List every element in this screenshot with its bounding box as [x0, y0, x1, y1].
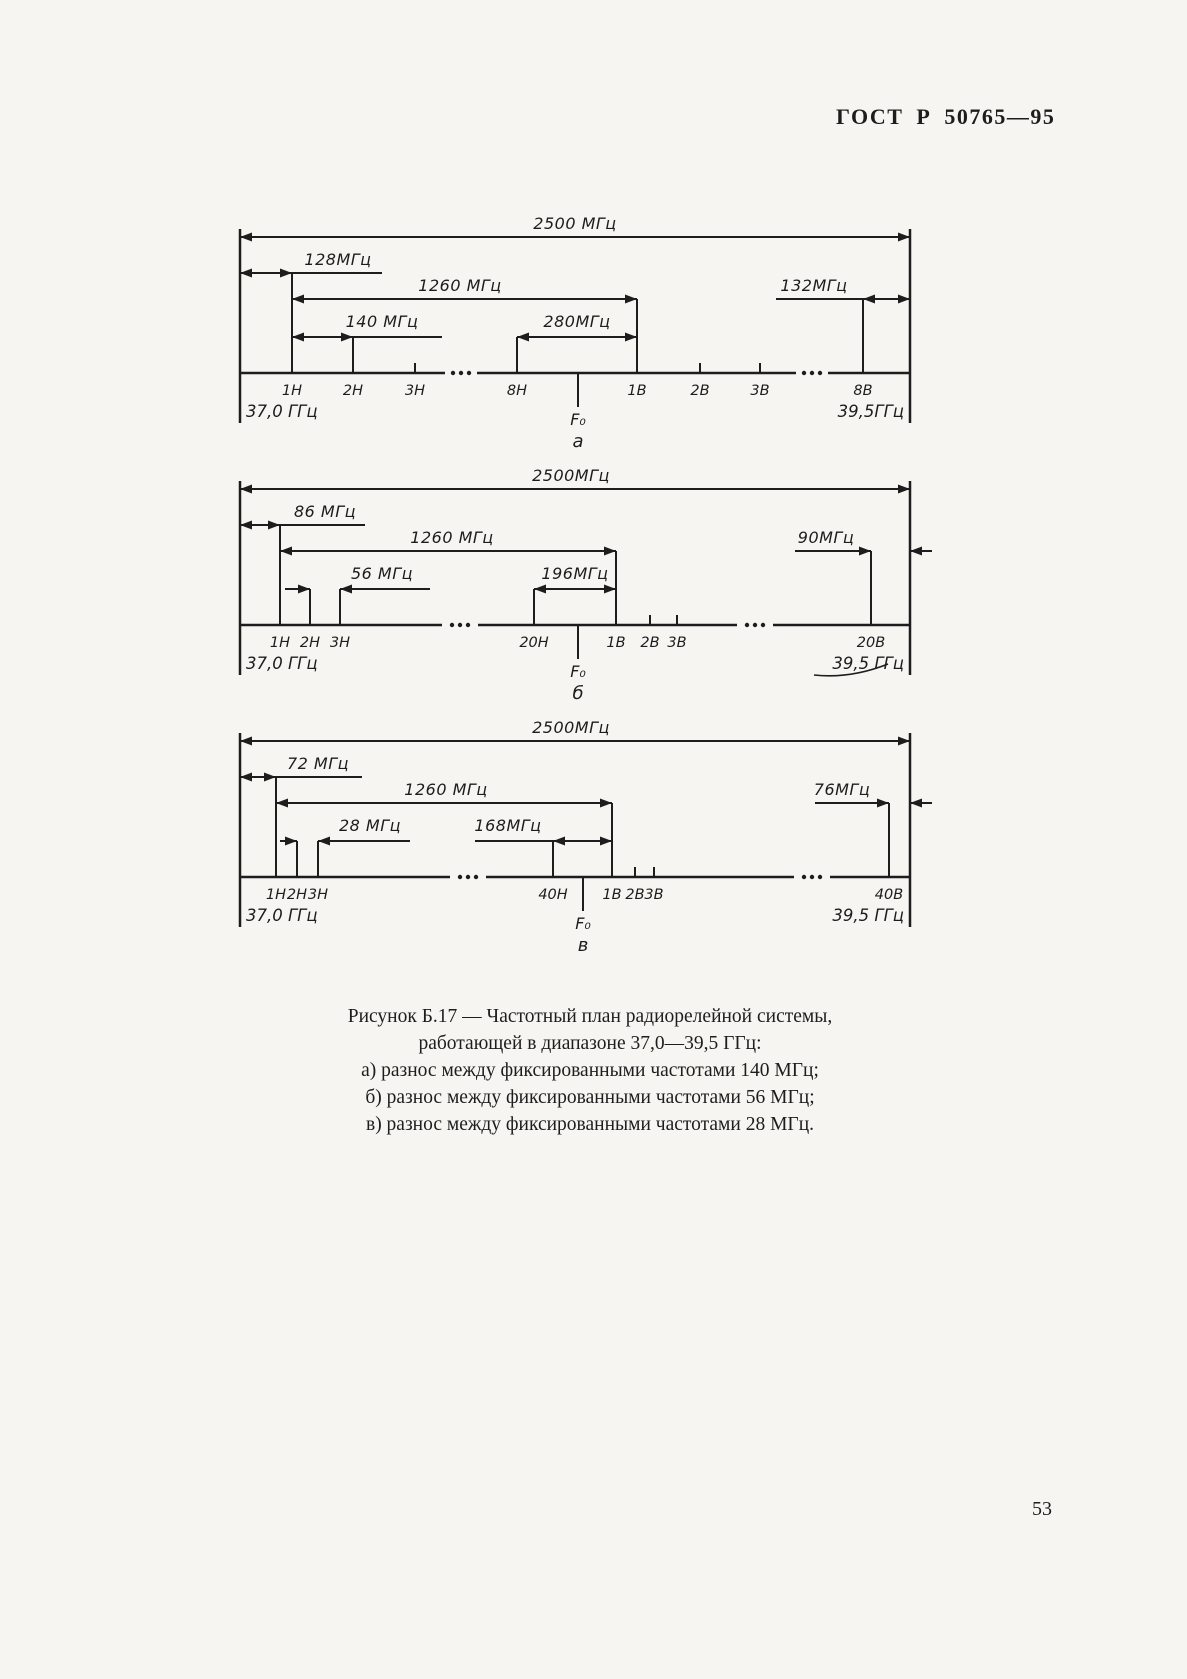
freq-right-label: 39,5ГГц	[838, 402, 904, 421]
axis-ellipsis-dot	[802, 371, 806, 375]
channel-label: 1Н	[282, 383, 302, 399]
channel-label: 2Н	[287, 887, 307, 903]
dim-label-left-offset: 72 МГц	[287, 754, 349, 773]
axis-ellipsis-dot	[818, 371, 822, 375]
channel-label: 20Н	[519, 635, 548, 651]
channel-label: 3В	[750, 383, 769, 399]
axis-ellipsis-dot	[467, 371, 471, 375]
channel-label: 1В	[602, 887, 621, 903]
channel-label: 1В	[627, 383, 646, 399]
labels: 2500МГц 86 МГц 1260 МГц 90МГц 56 МГц 196…	[246, 466, 904, 703]
dim-label-right-offset: 132МГц	[780, 276, 847, 295]
channel-label: 2В	[640, 635, 659, 651]
channel-label: 3Н	[308, 887, 328, 903]
freq-right-label: 39,5 ГГц	[832, 906, 904, 925]
channel-label: 1Н	[266, 887, 286, 903]
channel-label: 40Н	[538, 887, 567, 903]
dim-label-gap: 196МГц	[541, 564, 608, 583]
dim-label-total: 2500МГц	[532, 466, 610, 485]
axis-ellipsis-dot	[810, 371, 814, 375]
f0-label: F₀	[570, 410, 586, 429]
caption-item-a: а) разнос между фиксированными частотами…	[185, 1057, 995, 1084]
subfigure-label: а	[572, 431, 583, 451]
channel-label: 3В	[667, 635, 686, 651]
axis-ellipsis-dot	[818, 875, 822, 879]
diagram-a: 2500 МГц 128МГц 1260 МГц 132МГц 140 МГц …	[230, 211, 935, 451]
diagram-v: 2500МГц 72 МГц 1260 МГц 76МГц 28 МГц 168…	[230, 715, 935, 955]
freq-right-label: 39,5 ГГц	[832, 654, 904, 673]
subfigure-label: б	[572, 683, 583, 703]
channel-label: 40В	[875, 887, 903, 903]
caption-item-v: в) разнос между фиксированными частотами…	[185, 1111, 995, 1138]
diagram-b: 2500МГц 86 МГц 1260 МГц 90МГц 56 МГц 196…	[230, 463, 935, 703]
axis-ellipsis-dot	[466, 875, 470, 879]
axis-ellipsis-dot	[459, 371, 463, 375]
axis-ellipsis-dot	[474, 875, 478, 879]
channel-label: 2Н	[343, 383, 363, 399]
channel-label: 20В	[857, 635, 885, 651]
axis-ellipsis-dot	[761, 623, 765, 627]
freq-left-label: 37,0 ГГц	[246, 654, 318, 673]
labels: 2500МГц 72 МГц 1260 МГц 76МГц 28 МГц 168…	[246, 718, 904, 955]
axis-ellipsis-dot	[745, 623, 749, 627]
channel-label: 2В	[690, 383, 709, 399]
labels: 2500 МГц 128МГц 1260 МГц 132МГц 140 МГц …	[246, 214, 904, 451]
axis-ellipsis-dot	[466, 623, 470, 627]
channel-label: 3Н	[330, 635, 350, 651]
freq-left-label: 37,0 ГГц	[246, 402, 318, 421]
f0-label: F₀	[575, 914, 591, 933]
freq-left-label: 37,0 ГГц	[246, 906, 318, 925]
dim-label-right-offset: 76МГц	[814, 780, 870, 799]
caption-title-line-1: Рисунок Б.17 — Частотный план радиорелей…	[185, 1003, 995, 1030]
axis-ellipsis-dot	[458, 875, 462, 879]
page-number: 53	[1032, 1498, 1052, 1521]
dim-label-left-offset: 86 МГц	[294, 502, 356, 521]
channel-label: 3В	[644, 887, 663, 903]
dim-label-span: 1260 МГц	[404, 780, 487, 799]
channel-label: 1Н	[270, 635, 290, 651]
dim-label-total: 2500 МГц	[533, 214, 616, 233]
f0-label: F₀	[570, 662, 586, 681]
caption-title-line-2: работающей в диапазоне 37,0—39,5 ГГц:	[185, 1030, 995, 1057]
dim-label-step: 28 МГц	[339, 816, 401, 835]
axis	[240, 525, 910, 676]
channel-label: 8Н	[507, 383, 527, 399]
axis-ellipsis-dot	[810, 875, 814, 879]
axis-ellipsis-dot	[451, 371, 455, 375]
dim-label-gap: 168МГц	[474, 816, 541, 835]
axis-ellipsis-dot	[802, 875, 806, 879]
channel-label: 2В	[625, 887, 644, 903]
figure-caption: Рисунок Б.17 — Частотный план радиорелей…	[185, 1003, 995, 1138]
dim-label-span: 1260 МГц	[410, 528, 493, 547]
axis-ellipsis-dot	[450, 623, 454, 627]
channel-label: 3Н	[405, 383, 425, 399]
dim-label-step: 140 МГц	[346, 312, 419, 331]
channel-label: 8В	[853, 383, 872, 399]
dim-label-span: 1260 МГц	[418, 276, 501, 295]
axis	[240, 777, 910, 911]
channel-label: 1В	[606, 635, 625, 651]
dim-label-step: 56 МГц	[351, 564, 413, 583]
dim-label-total: 2500МГц	[532, 718, 610, 737]
dim-label-left-offset: 128МГц	[304, 250, 371, 269]
caption-item-b: б) разнос между фиксированными частотами…	[185, 1084, 995, 1111]
channel-label: 2Н	[300, 635, 320, 651]
document-header: ГОСТ Р 50765—95	[836, 104, 1055, 130]
axis-ellipsis-dot	[753, 623, 757, 627]
axis-ellipsis-dot	[458, 623, 462, 627]
dim-label-right-offset: 90МГц	[798, 528, 854, 547]
subfigure-label: в	[578, 935, 589, 955]
document-page: ГОСТ Р 50765—95	[0, 0, 1187, 1679]
dim-label-gap: 280МГц	[543, 312, 610, 331]
